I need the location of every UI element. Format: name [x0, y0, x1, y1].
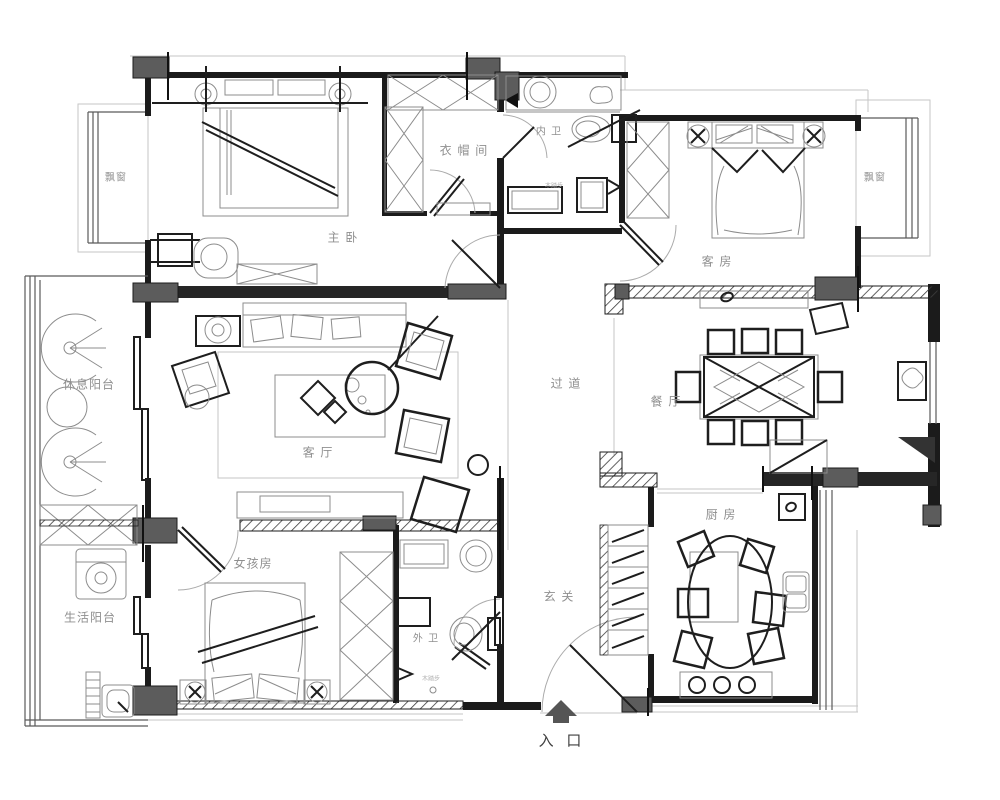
balcony-railing [25, 276, 148, 726]
sliding-door-utility-balcony [134, 597, 148, 668]
furniture-rest-balcony [41, 314, 106, 496]
door-entry [542, 617, 637, 712]
door-guest-room [620, 222, 676, 281]
furniture-living-room [172, 303, 488, 532]
furniture-girls-room [180, 552, 393, 704]
door-shower [455, 643, 490, 669]
furniture-dining-room [676, 291, 935, 473]
kitchen-window [820, 490, 832, 710]
door-guest-bath [454, 597, 503, 645]
floor-plan-canvas: 主 卧 衣 帽 间 内 卫 客 房 客 厅 过 道 餐 厅 厨 房 女孩房 外 … [0, 0, 1000, 800]
sliding-door-living-balcony [134, 337, 148, 480]
furniture-closet [385, 75, 498, 212]
fixtures-utility-balcony [76, 549, 134, 718]
door-master-bath [503, 93, 547, 158]
label-entrance: 入 口 [539, 730, 586, 751]
fixtures-guest-bath [396, 540, 500, 693]
bay-window-right [861, 118, 918, 238]
door-girls-room [178, 527, 238, 590]
furniture-guest-room [627, 122, 825, 238]
bay-window-left [88, 112, 145, 243]
furniture-master-bedroom [150, 66, 490, 284]
balcony-divider-cabinet [40, 505, 138, 545]
floor-plan-drawing [0, 0, 1000, 800]
shoe-cabinet [600, 525, 648, 655]
entrance-arrow-icon [545, 700, 577, 723]
furniture-kitchen [674, 494, 809, 698]
door-master-bedroom [445, 235, 500, 288]
dining-window [930, 342, 936, 424]
